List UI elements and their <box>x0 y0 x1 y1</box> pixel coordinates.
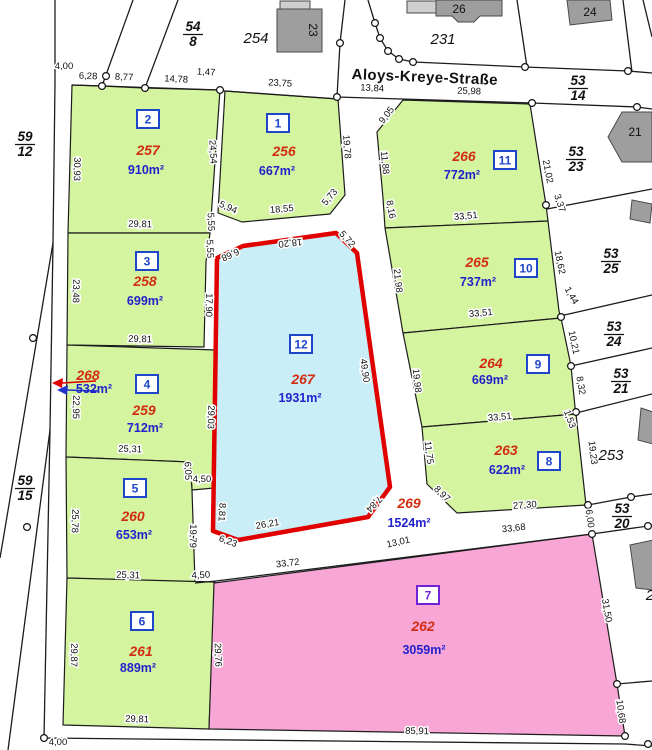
survey-point <box>385 48 392 55</box>
survey-point <box>622 733 629 740</box>
survey-point <box>645 523 652 530</box>
parcel-area: 622m² <box>489 463 525 477</box>
measurement-label: 33,72 <box>275 557 300 571</box>
lot-number: 9 <box>535 358 542 372</box>
measurement-label: 1,44 <box>562 285 581 307</box>
measurement-label: 1,47 <box>197 67 216 79</box>
survey-point <box>41 735 48 742</box>
survey-point <box>589 531 596 538</box>
parcel-number: 265 <box>464 254 489 270</box>
boundary <box>571 348 652 366</box>
measurement-label: 8,32 <box>573 376 587 396</box>
survey-point <box>337 40 344 47</box>
measurement-label: 5,55 <box>204 239 216 258</box>
survey-point <box>522 64 529 71</box>
measurement-label: 23,75 <box>268 77 292 89</box>
measurement-label: 85,91 <box>405 726 429 737</box>
parcel-number: 259 <box>131 402 156 418</box>
building-23-label: 23 <box>306 23 320 37</box>
boundary <box>0 243 53 558</box>
survey-point <box>543 202 550 209</box>
fraction-numerator: 53 <box>570 73 586 88</box>
parcel-number: 266 <box>451 148 476 164</box>
measurement-label: 8,77 <box>115 72 134 84</box>
measurement-label: 29,81 <box>128 219 152 231</box>
parcel-area: 1931m² <box>278 391 321 405</box>
building-fragment-2 <box>638 408 652 444</box>
fraction-numerator: 53 <box>603 246 619 261</box>
fraction-denominator: 8 <box>189 34 197 49</box>
parcel-area: 532m² <box>76 382 112 396</box>
parcel-number: 257 <box>135 142 161 158</box>
building-fragment-1 <box>630 200 652 223</box>
fraction-denominator: 23 <box>567 159 584 174</box>
survey-point <box>614 681 621 688</box>
lot-number: 3 <box>144 255 151 269</box>
neighbor-parcel-label: 254 <box>242 30 268 47</box>
measurement-label: 11,88 <box>378 151 391 175</box>
measurement-label: 18,55 <box>269 203 294 216</box>
boundary <box>44 83 55 738</box>
lot-number: 2 <box>145 113 152 127</box>
arrow-268-head <box>52 378 63 388</box>
measurement-label: 4,00 <box>49 737 68 748</box>
parcel-257 <box>68 85 220 233</box>
neighbor-parcel-label: 253 <box>597 447 624 464</box>
fraction-denominator: 15 <box>17 488 33 503</box>
measurement-label: 5,55 <box>205 212 217 231</box>
survey-point <box>217 87 224 94</box>
fraction-numerator: 59 <box>17 473 33 488</box>
survey-point <box>625 68 632 75</box>
measurement-label: 13,01 <box>386 535 412 551</box>
survey-point <box>634 104 641 111</box>
parcel-area: 737m² <box>460 275 496 289</box>
building-26-label: 26 <box>452 2 466 16</box>
parcel-area: 712m² <box>127 421 163 435</box>
parcel-262 <box>209 534 625 736</box>
survey-point <box>396 56 403 63</box>
measurement-label: 33,51 <box>468 307 493 320</box>
boundary <box>44 738 652 746</box>
measurement-label: 21,98 <box>391 268 404 293</box>
fraction-numerator: 59 <box>17 129 33 144</box>
boundary <box>623 0 632 72</box>
measurement-label: 33,68 <box>501 522 526 535</box>
measurement-label: 24,54 <box>206 140 218 164</box>
fraction-numerator: 54 <box>185 19 201 34</box>
measurement-label: 14,78 <box>164 73 188 85</box>
parcel-number: 264 <box>478 355 503 371</box>
measurement-label: 4,00 <box>55 61 74 72</box>
survey-point <box>585 502 592 509</box>
measurement-label: 4,50 <box>191 570 210 582</box>
parcel-area: 3059m² <box>402 643 445 657</box>
fraction-denominator: 14 <box>570 88 586 103</box>
parcel-area: 669m² <box>472 373 508 387</box>
measurement-label: 29,81 <box>128 334 152 346</box>
fraction-numerator: 53 <box>614 501 630 516</box>
parcel-area: 772m² <box>444 168 480 182</box>
measurement-label: 33,51 <box>487 411 512 424</box>
building-21-label: 21 <box>628 125 642 139</box>
survey-point <box>568 363 575 370</box>
survey-point <box>529 100 536 107</box>
boundary <box>643 0 652 37</box>
survey-point <box>410 59 417 66</box>
parcel-area: 889m² <box>120 661 156 675</box>
survey-point <box>628 494 635 501</box>
measurement-label: 25,31 <box>118 444 142 456</box>
parcel-area: 1524m² <box>387 516 430 530</box>
measurement-label: 27,30 <box>513 499 537 512</box>
measurement-label: 17,90 <box>203 293 214 317</box>
lot-number: 12 <box>294 338 308 352</box>
fraction-denominator: 12 <box>17 144 33 159</box>
fraction-denominator: 20 <box>613 516 630 531</box>
measurement-label: 19,79 <box>187 524 198 548</box>
survey-point <box>334 94 341 101</box>
arrow-532-head <box>57 385 68 395</box>
fraction-numerator: 53 <box>613 366 629 381</box>
building-fragment-3 <box>630 540 652 590</box>
map-canvas: 232624214,006,288,7714,781,4723,7513,842… <box>0 0 652 750</box>
parcel-area: 667m² <box>259 164 295 178</box>
parcel-number: 261 <box>128 643 153 659</box>
survey-point <box>30 335 37 342</box>
survey-point <box>99 83 106 90</box>
fraction-numerator: 53 <box>606 319 622 334</box>
parcel-number: 263 <box>493 442 518 458</box>
survey-point <box>558 314 565 321</box>
survey-point <box>372 20 379 27</box>
neighbor-parcel-label: 231 <box>429 31 455 48</box>
measurement-label: 8,81 <box>215 503 227 522</box>
boundary <box>517 0 527 67</box>
measurement-label: 29,76 <box>212 643 224 667</box>
measurement-label: 11,75 <box>422 441 436 465</box>
measurement-label: 25,31 <box>116 570 140 582</box>
fraction-numerator: 53 <box>568 144 584 159</box>
parcel-number: 262 <box>410 618 435 634</box>
parcel-number: 267 <box>290 371 316 387</box>
parcel-number: 256 <box>271 143 296 159</box>
lot-number: 7 <box>425 589 432 603</box>
survey-point <box>645 741 652 748</box>
parcel-258 <box>67 233 210 347</box>
measurement-label: 19,23 <box>586 440 600 465</box>
measurement-label: 30,93 <box>71 157 82 181</box>
fraction-denominator: 21 <box>612 381 628 396</box>
cadastral-map: 232624214,006,288,7714,781,4723,7513,842… <box>0 0 652 750</box>
measurement-label: 29,81 <box>125 714 149 726</box>
measurement-label: 22,95 <box>70 395 81 419</box>
measurement-label: 33,51 <box>453 210 478 223</box>
survey-point <box>142 85 149 92</box>
parcel-number: 258 <box>132 273 157 289</box>
lot-number: 10 <box>519 262 533 276</box>
measurement-label: 29,03 <box>205 405 217 429</box>
boundary <box>337 0 345 97</box>
parcel-area: 653m² <box>116 528 152 542</box>
measurement-label: 19,98 <box>410 368 423 393</box>
measurement-label: 18,20 <box>278 236 303 249</box>
lot-number: 6 <box>139 615 146 629</box>
measurement-label: 6,00 <box>583 509 596 529</box>
building-23-roof <box>280 1 310 9</box>
lot-number: 5 <box>132 482 139 496</box>
parcel-number: 269 <box>396 495 421 511</box>
measurement-label: 6,28 <box>79 71 98 83</box>
neighbor-parcel-label: 2 <box>645 587 652 604</box>
parcel-266 <box>377 100 548 228</box>
measurement-label: 6,05 <box>182 461 194 480</box>
boundary <box>617 681 652 684</box>
lot-number: 1 <box>275 117 282 131</box>
building-26-roof <box>407 1 440 13</box>
measurement-label: 3,37 <box>551 193 567 214</box>
parcel-area: 910m² <box>128 163 164 177</box>
lot-number: 8 <box>546 455 553 469</box>
measurement-label: 23,48 <box>70 279 81 303</box>
lot-number: 11 <box>499 154 512 168</box>
fraction-denominator: 25 <box>602 261 619 276</box>
survey-point <box>24 524 31 531</box>
measurement-label: 13,84 <box>360 82 384 94</box>
parcel-area: 699m² <box>127 294 163 308</box>
survey-point <box>377 35 384 42</box>
building-26 <box>436 0 502 22</box>
parcel-number: 260 <box>120 508 145 524</box>
building-24-label: 24 <box>583 5 597 19</box>
measurement-label: 25,78 <box>69 509 80 533</box>
lot-number: 4 <box>144 378 151 392</box>
fraction-denominator: 24 <box>605 334 622 349</box>
measurement-label: 29,87 <box>68 643 79 667</box>
measurement-label: 4,50 <box>193 474 212 485</box>
survey-point <box>103 73 110 80</box>
measurement-label: 19,78 <box>340 135 353 159</box>
parcel-number: 268 <box>75 367 100 383</box>
